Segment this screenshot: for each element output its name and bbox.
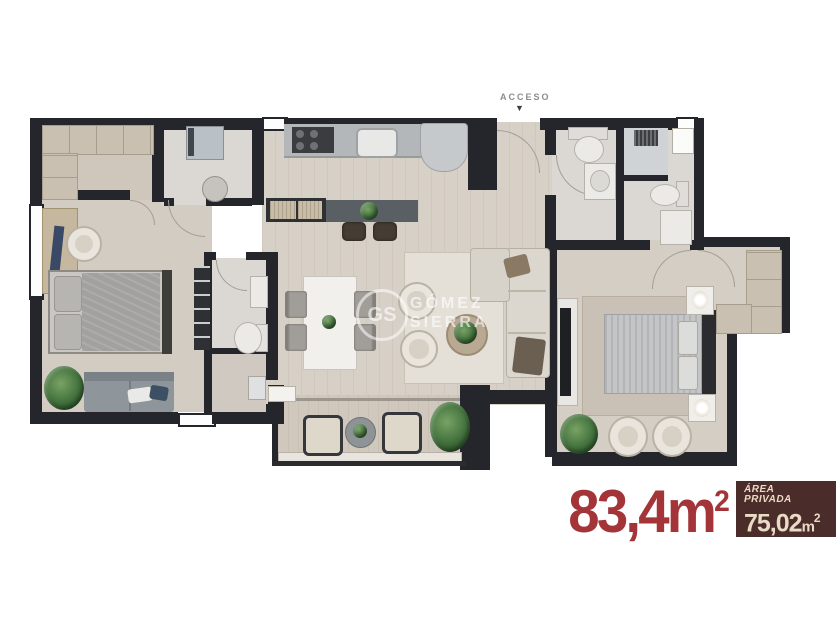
window <box>178 413 216 427</box>
kitchen-sink <box>356 128 398 158</box>
wall <box>490 390 546 404</box>
basket <box>298 201 322 219</box>
wall <box>694 118 704 250</box>
private-area-badge: ÁREA PRIVADA 75,02m2 <box>736 481 836 537</box>
watermark-logo-icon: GS <box>356 289 408 341</box>
balcony-rail <box>272 461 466 466</box>
sofa2-pillow-navy <box>149 385 169 402</box>
dining-chair <box>285 324 307 351</box>
ensuite2-sink <box>202 176 228 202</box>
wall <box>35 412 178 424</box>
burner <box>310 142 318 150</box>
total-area-value: 83,4m2 <box>568 477 730 546</box>
accent-chair <box>400 330 438 368</box>
private-area-number: 75,02 <box>744 509 802 537</box>
dining-table-plant <box>322 315 336 329</box>
total-area-unit: m <box>667 478 714 545</box>
balcony-chair <box>382 412 422 454</box>
master-chair <box>608 416 648 457</box>
wall <box>30 118 42 204</box>
wall <box>252 122 264 205</box>
wall <box>552 452 737 466</box>
desk-chair <box>66 226 102 262</box>
wall <box>30 296 42 424</box>
private-area-unit: m <box>802 518 814 535</box>
master-bed-pillow <box>678 356 698 390</box>
private-area-exponent: 2 <box>814 511 820 525</box>
bathroom2-niche <box>672 128 694 154</box>
wall <box>616 122 624 250</box>
master-nightstand <box>686 286 714 315</box>
sofa-throw <box>512 336 546 375</box>
wall-shower-glass <box>624 175 668 181</box>
basket <box>270 201 296 219</box>
island-stool <box>342 222 366 241</box>
private-area-label-line2: PRIVADA <box>744 495 829 505</box>
access-label: ACCESO <box>500 92 551 102</box>
laundry-door-leaf <box>268 386 296 402</box>
total-area-exponent: 2 <box>714 485 730 518</box>
master-lamp-table <box>688 394 716 422</box>
sofa-cushion-line <box>508 290 546 292</box>
wall <box>545 122 556 155</box>
closet2-shelves-left <box>42 153 78 200</box>
wall <box>266 252 278 380</box>
watermark-name-line2: SIERRA <box>410 313 488 332</box>
watermark-name-line1: GÓMEZ <box>410 294 488 313</box>
total-area-number: 83,4 <box>568 478 666 545</box>
bathroom-sink <box>250 276 268 308</box>
burner <box>296 130 304 138</box>
burner <box>296 142 304 150</box>
island-stool <box>373 222 397 241</box>
island-plant <box>360 202 378 220</box>
private-area-value: 75,02m2 <box>744 505 829 540</box>
sofa2-back <box>84 372 174 381</box>
master-chair <box>652 416 692 457</box>
master-bed-pillow <box>678 321 698 355</box>
bed2-blanket <box>82 273 160 351</box>
shower-fixture <box>188 128 194 156</box>
laundry-heater <box>248 376 266 400</box>
balcony-table-plant <box>353 424 367 438</box>
closet2-shelves-top <box>42 125 154 155</box>
bed2-pillow <box>54 276 82 312</box>
wall <box>727 333 737 460</box>
dining-chair <box>285 291 307 318</box>
balcony-plant <box>430 402 470 452</box>
burner <box>310 130 318 138</box>
bedroom2-dresser <box>194 266 210 350</box>
wall <box>704 237 790 247</box>
wall <box>690 240 704 250</box>
floor-plan-image: ACCESO ▼ GS GÓMEZ SIERRA 83,4m2 ÁREA PRI… <box>0 0 840 630</box>
bed2-pillow <box>54 314 82 350</box>
bed2-footboard <box>162 270 172 354</box>
sofa-cushion-line <box>508 332 546 334</box>
bathroom1-basin <box>590 170 610 192</box>
toilet-bowl <box>234 322 262 354</box>
bathroom2-vanity <box>660 210 692 245</box>
plant <box>560 414 598 454</box>
wall <box>204 252 216 260</box>
access-arrow-icon: ▼ <box>515 103 524 113</box>
toilet-bowl <box>574 136 604 163</box>
wall-entry-stub <box>468 118 497 190</box>
master-closet-shelf <box>716 304 752 334</box>
refrigerator <box>420 123 468 172</box>
toilet-bowl <box>650 184 680 206</box>
plant <box>44 366 84 410</box>
watermark-name: GÓMEZ SIERRA <box>410 294 488 332</box>
tv-screen <box>560 308 571 396</box>
balcony-chair <box>303 415 343 456</box>
shower2-drain <box>634 130 658 146</box>
sliding-door-track <box>284 398 460 401</box>
wall <box>545 240 650 250</box>
